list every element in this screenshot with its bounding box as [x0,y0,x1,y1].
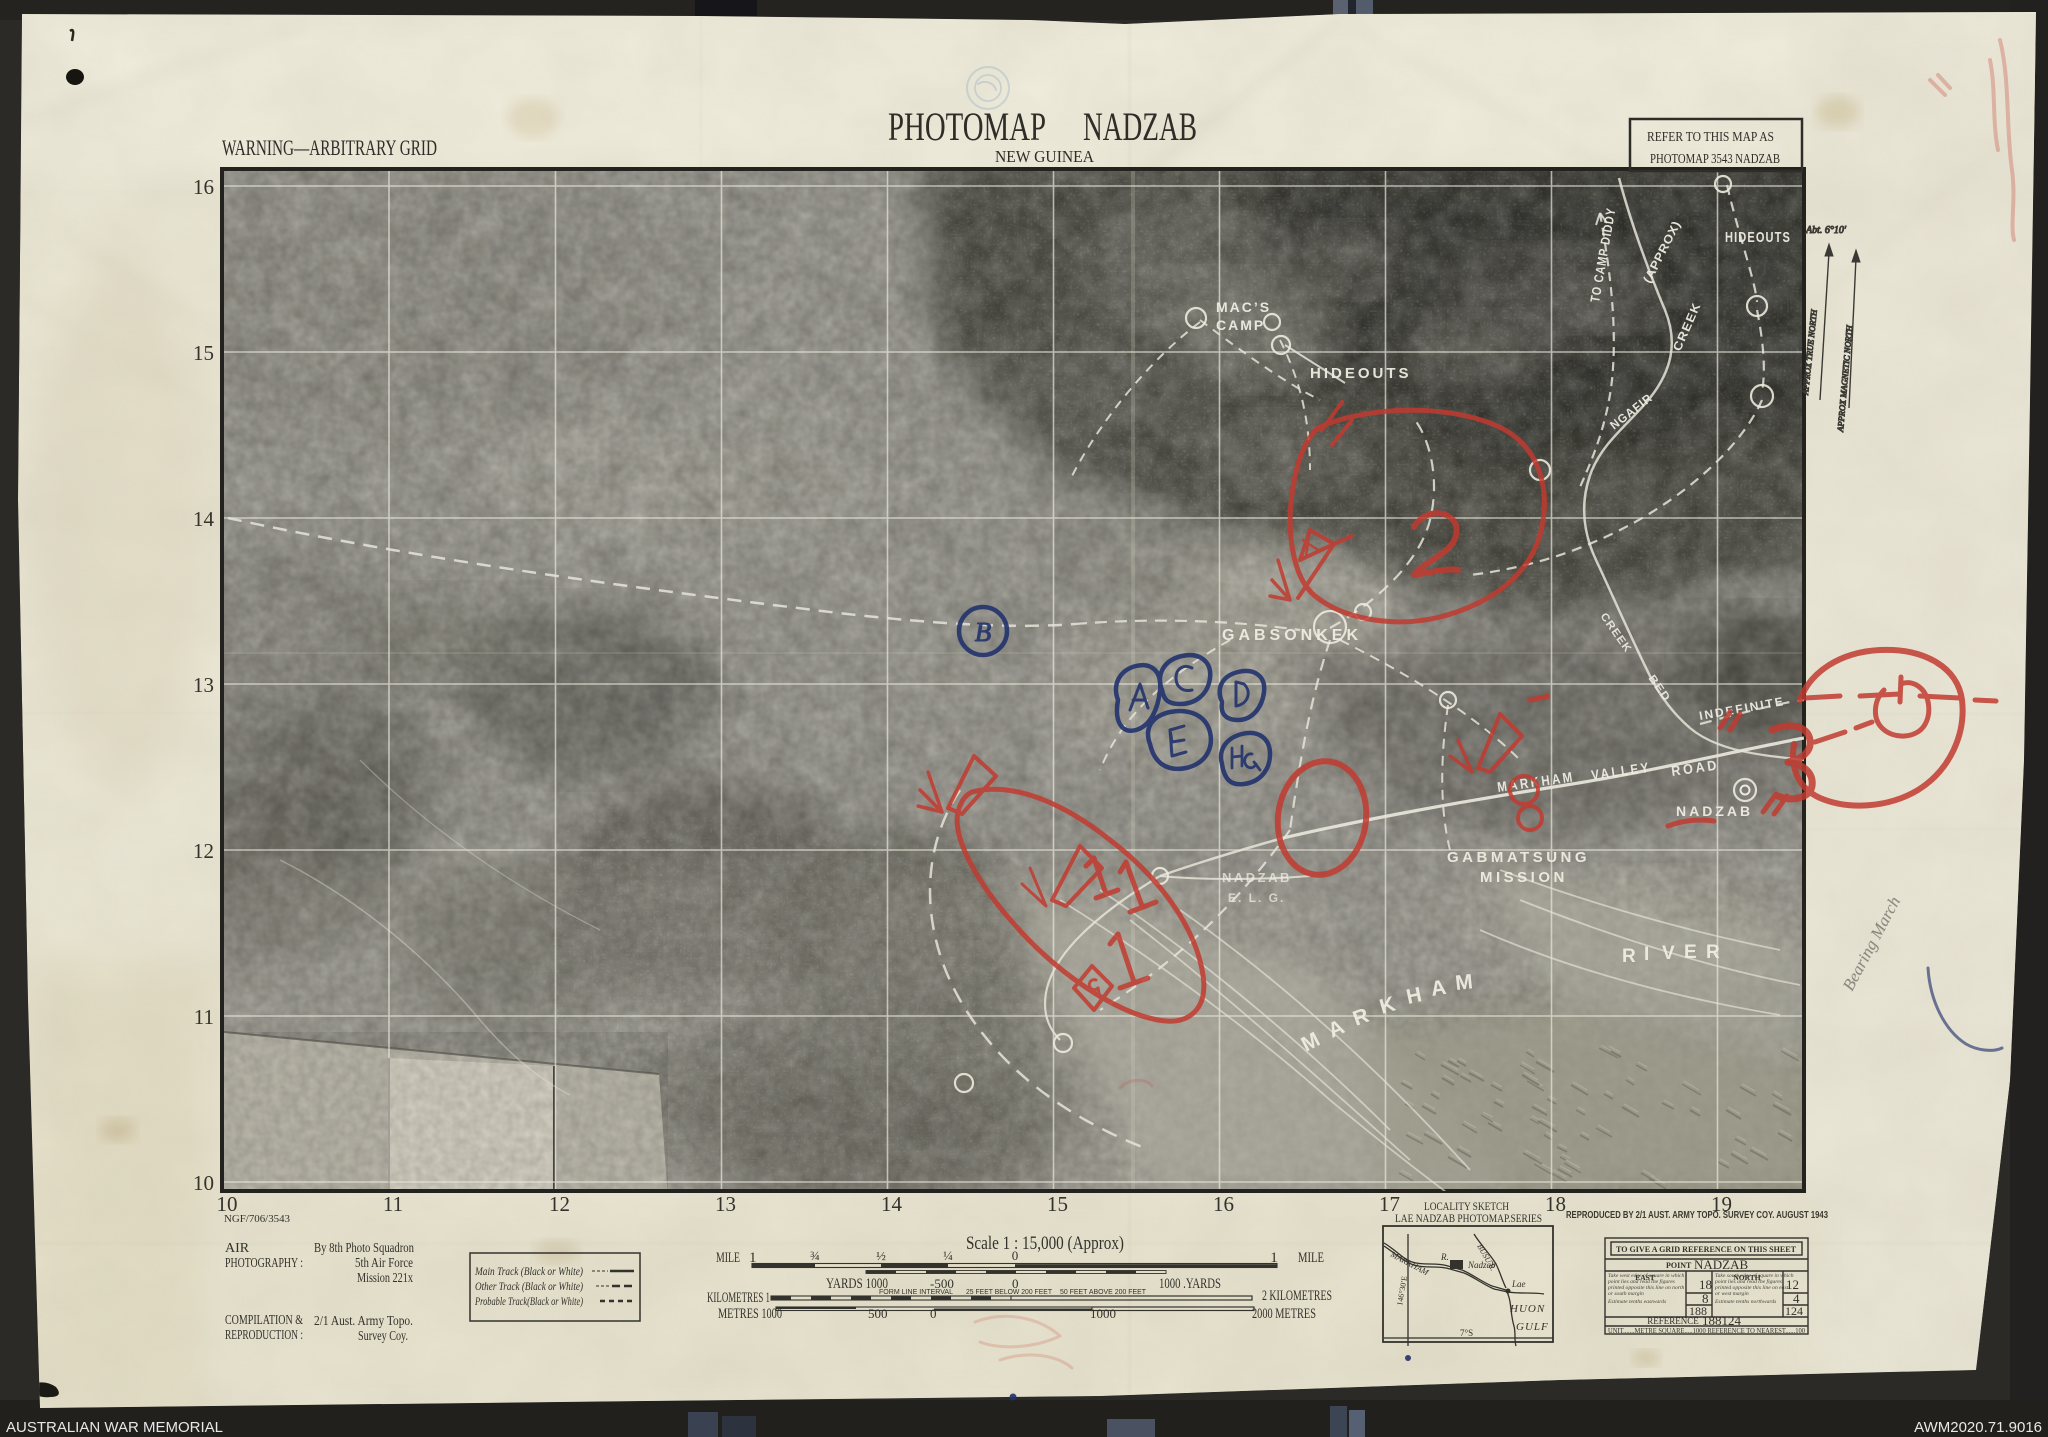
svg-text:WARNING—ARBITRARY GRID: WARNING—ARBITRARY GRID [222,135,437,160]
svg-text:NEW GUINEA: NEW GUINEA [995,147,1095,166]
svg-text:HIDEOUTS: HIDEOUTS [1725,229,1791,246]
svg-text:M: M [1454,970,1474,995]
svg-text:Other Track (Black or White: Other Track (Black or White) [475,1281,583,1293]
svg-text:GULF: GULF [1516,1321,1549,1333]
svg-text:NGF/706/3543: NGF/706/3543 [224,1214,290,1225]
svg-text:¼: ¼ [943,1248,953,1263]
svg-text:REPRODUCTION :: REPRODUCTION : [225,1328,303,1343]
svg-text:50 FEET ABOVE 200 FEET: 50 FEET ABOVE 200 FEET [1060,1289,1147,1296]
svg-text:1000 .YARDS: 1000 .YARDS [1159,1276,1221,1292]
svg-text:MISSION: MISSION [1480,869,1568,886]
svg-text:GABMATSUNG: GABMATSUNG [1447,849,1590,866]
svg-text:NADZAB: NADZAB [1222,870,1292,885]
svg-text:11: 11 [383,1192,403,1216]
svg-text:Abt. 6°10′: Abt. 6°10′ [1805,225,1847,236]
svg-text:16: 16 [193,175,214,199]
svg-text:2000 METRES: 2000 METRES [1252,1306,1316,1322]
svg-text:Take west edge of square in wh: Take west edge of square in which [1608,1272,1685,1279]
svg-text:500: 500 [868,1306,888,1321]
svg-text:TO GIVE A GRID REFERENCE ON TH: TO GIVE A GRID REFERENCE ON THIS SHEET [1616,1244,1796,1254]
svg-text:Estimate tenths northwards: Estimate tenths northwards [1714,1299,1776,1305]
svg-text:188124: 188124 [1702,1313,1742,1328]
svg-text:B: B [975,617,992,647]
svg-text:124: 124 [1785,1304,1803,1318]
svg-text:KILOMETRES 1: KILOMETRES 1 [707,1290,770,1306]
svg-text:14: 14 [193,507,215,531]
svg-text:PHOTOMAP: PHOTOMAP [888,104,1046,149]
svg-text:15: 15 [1047,1192,1068,1216]
svg-text:½: ½ [876,1248,886,1263]
svg-text:POINT: POINT [1666,1261,1692,1270]
svg-text:point lies and read the f: point lies and read the figures [1714,1278,1782,1285]
svg-text:Estimate tenths eastwards: Estimate tenths eastwards [1607,1299,1666,1305]
svg-text:¾: ¾ [810,1248,820,1263]
svg-text:Scale 1 : 15,000 (Approx): Scale 1 : 15,000 (Approx) [966,1233,1124,1254]
svg-text:MILE: MILE [1298,1250,1324,1266]
svg-text:MILE: MILE [716,1250,740,1266]
svg-text:14: 14 [881,1192,903,1216]
svg-text:HIDEOUTS: HIDEOUTS [1310,365,1412,382]
svg-text:PHOTOMAP 3543 NADZAB: PHOTOMAP 3543 NADZAB [1650,152,1780,167]
svg-text:By 8th Photo Squadron: By 8th Photo Squadron [314,1241,414,1256]
svg-text:R: R [1706,942,1720,963]
svg-text:0: 0 [1012,1248,1019,1263]
svg-text:REFER TO THIS MAP AS: REFER TO THIS MAP AS [1647,130,1774,145]
svg-text:LAE NADZAB PHOTOMAP.SERIES: LAE NADZAB PHOTOMAP.SERIES [1395,1211,1542,1225]
svg-text:18: 18 [1699,1277,1712,1292]
svg-text:2 KILOMETRES: 2 KILOMETRES [1262,1288,1332,1304]
svg-text:GABSONKEK: GABSONKEK [1222,627,1362,644]
svg-text:5th Air Force: 5th Air Force [355,1256,413,1271]
svg-text:Lae: Lae [1511,1279,1526,1289]
svg-text:Mission 221x: Mission 221x [357,1271,413,1286]
svg-text:MAC’S: MAC’S [1216,299,1271,315]
svg-text:2/1 Aust. Army Topo.: 2/1 Aust. Army Topo. [314,1314,413,1329]
svg-text:AUSTRALIAN WAR MEMORIAL: AUSTRALIAN WAR MEMORIAL [6,1419,223,1436]
svg-text:Survey Coy.: Survey Coy. [358,1329,408,1344]
svg-text:V: V [1662,943,1675,964]
svg-text:NADZAB: NADZAB [1083,104,1197,149]
svg-text:13: 13 [193,673,214,697]
svg-text:12: 12 [549,1192,570,1216]
svg-text:CAMP: CAMP [1216,317,1265,333]
svg-text:point lies and read the f: point lies and read the figures [1607,1278,1675,1285]
svg-text:I: I [1644,944,1649,965]
svg-text:REPRODUCED BY 2/1 AUST. ARMY T: REPRODUCED BY 2/1 AUST. ARMY TOPO. SURVE… [1566,1210,1828,1221]
svg-text:AWM2020.71.9016: AWM2020.71.9016 [1914,1419,2042,1436]
svg-text:10: 10 [193,1171,214,1195]
svg-text:0: 0 [930,1306,937,1321]
svg-text:25 FEET BELOW 200 FEET: 25 FEET BELOW 200 FEET [966,1289,1053,1296]
svg-text:E. L. G.: E. L. G. [1228,891,1285,905]
svg-text:NADZAB: NADZAB [1694,1257,1748,1272]
svg-text:15: 15 [193,341,214,365]
svg-text:COMPILATION &: COMPILATION & [225,1313,303,1328]
svg-text:1000: 1000 [1090,1306,1116,1321]
svg-text:METRES 1000: METRES 1000 [718,1306,782,1322]
svg-text:R.: R. [1440,1252,1449,1262]
svg-text:E: E [1684,942,1697,963]
svg-text:FORM LINE INTERVAL: FORM LINE INTERVAL [879,1289,953,1296]
svg-text:REFERENCE: REFERENCE [1647,1316,1699,1326]
svg-text:13: 13 [715,1192,736,1216]
svg-text:or west margin: or west margin [1715,1291,1749,1297]
svg-text:16: 16 [1213,1192,1234,1216]
svg-text:or south margin: or south margin [1608,1291,1644,1297]
svg-text:Main Track (Black or White): Main Track (Black or White) [474,1266,583,1278]
svg-text:7°S: 7°S [1460,1328,1473,1338]
svg-text:Probable Track(Black or White): Probable Track(Black or White) [474,1296,583,1308]
svg-text:PHOTOGRAPHY :: PHOTOGRAPHY : [225,1256,303,1271]
svg-text:R: R [1622,946,1636,967]
svg-text:UNIT.......METRE SQUARE.....: UNIT.......METRE SQUARE.....1000 REFEREN… [1608,1327,1805,1335]
svg-text:AIR: AIR [225,1241,250,1256]
svg-text:12: 12 [193,839,214,863]
svg-text:HUON: HUON [1509,1303,1545,1315]
svg-text:10: 10 [217,1192,238,1216]
svg-text:NADZAB: NADZAB [1676,803,1753,819]
svg-text:Take south edge of square in w: Take south edge of square in which [1715,1272,1794,1279]
svg-text:11: 11 [194,1005,214,1029]
svg-text:18: 18 [1545,1192,1566,1216]
